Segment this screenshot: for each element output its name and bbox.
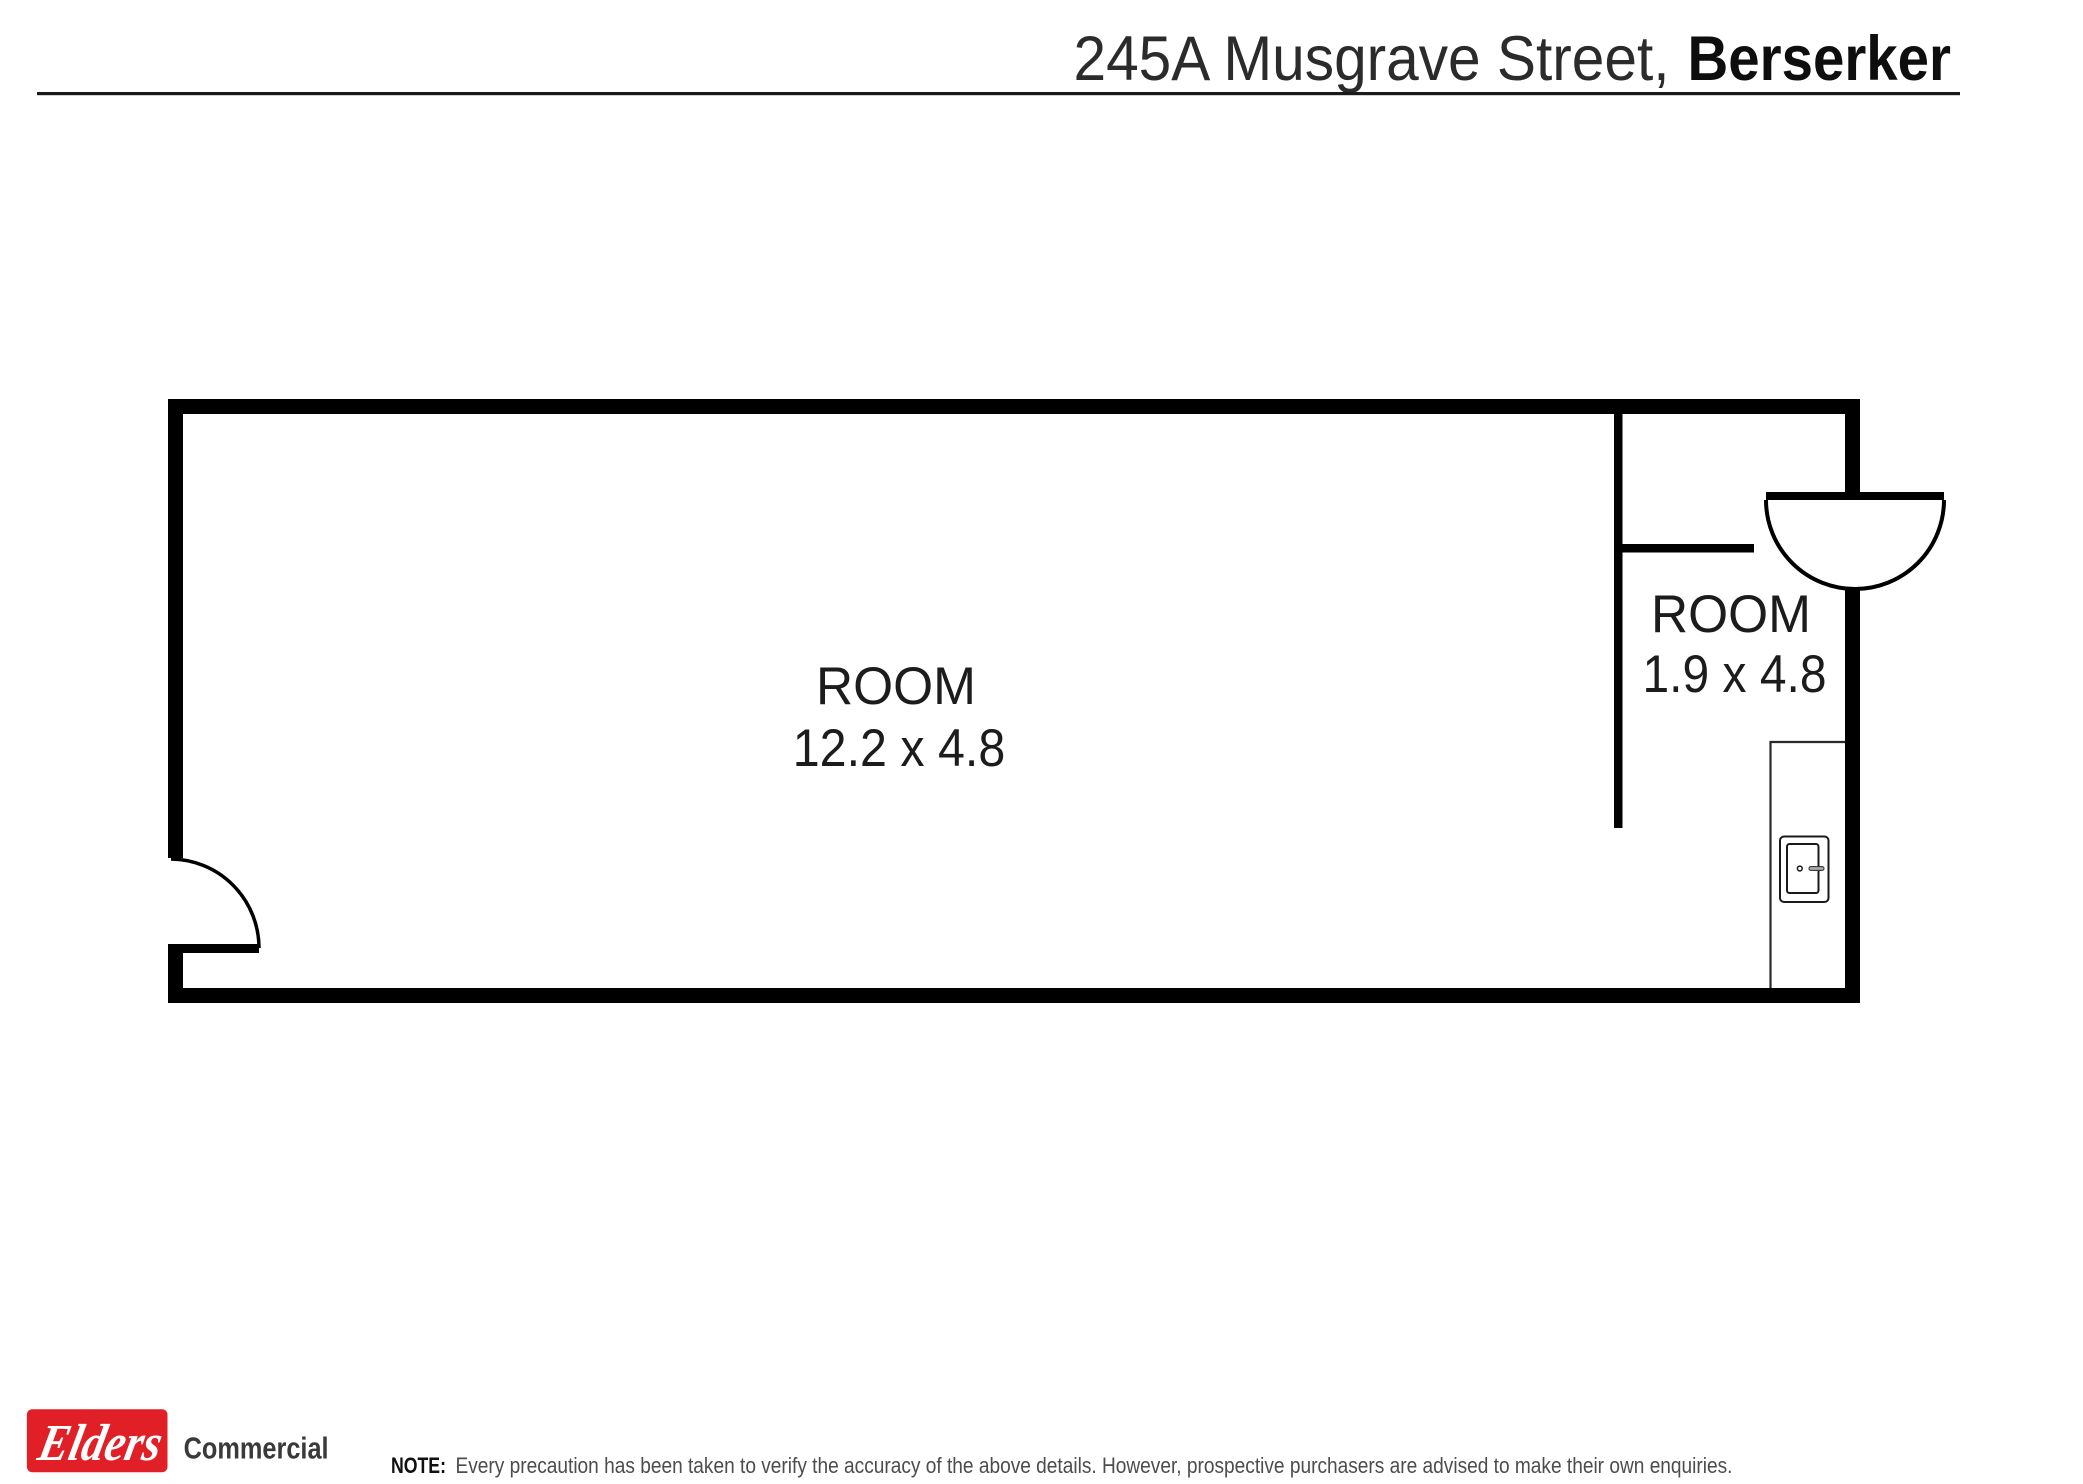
svg-text:12.2 x 4.8: 12.2 x 4.8 [793,719,1006,778]
svg-text:NOTE:: NOTE: [391,1453,446,1478]
svg-text:Elders: Elders [33,1415,168,1472]
svg-text:Berserker: Berserker [1688,24,1952,94]
svg-text:Every precaution has been take: Every precaution has been taken to verif… [456,1453,1733,1478]
svg-text:245A Musgrave Street,: 245A Musgrave Street, [1074,24,1670,94]
svg-text:ROOM: ROOM [816,657,976,716]
svg-text:ROOM: ROOM [1651,585,1811,644]
svg-text:Commercial: Commercial [184,1430,329,1465]
svg-text:1.9 x 4.8: 1.9 x 4.8 [1643,645,1827,704]
